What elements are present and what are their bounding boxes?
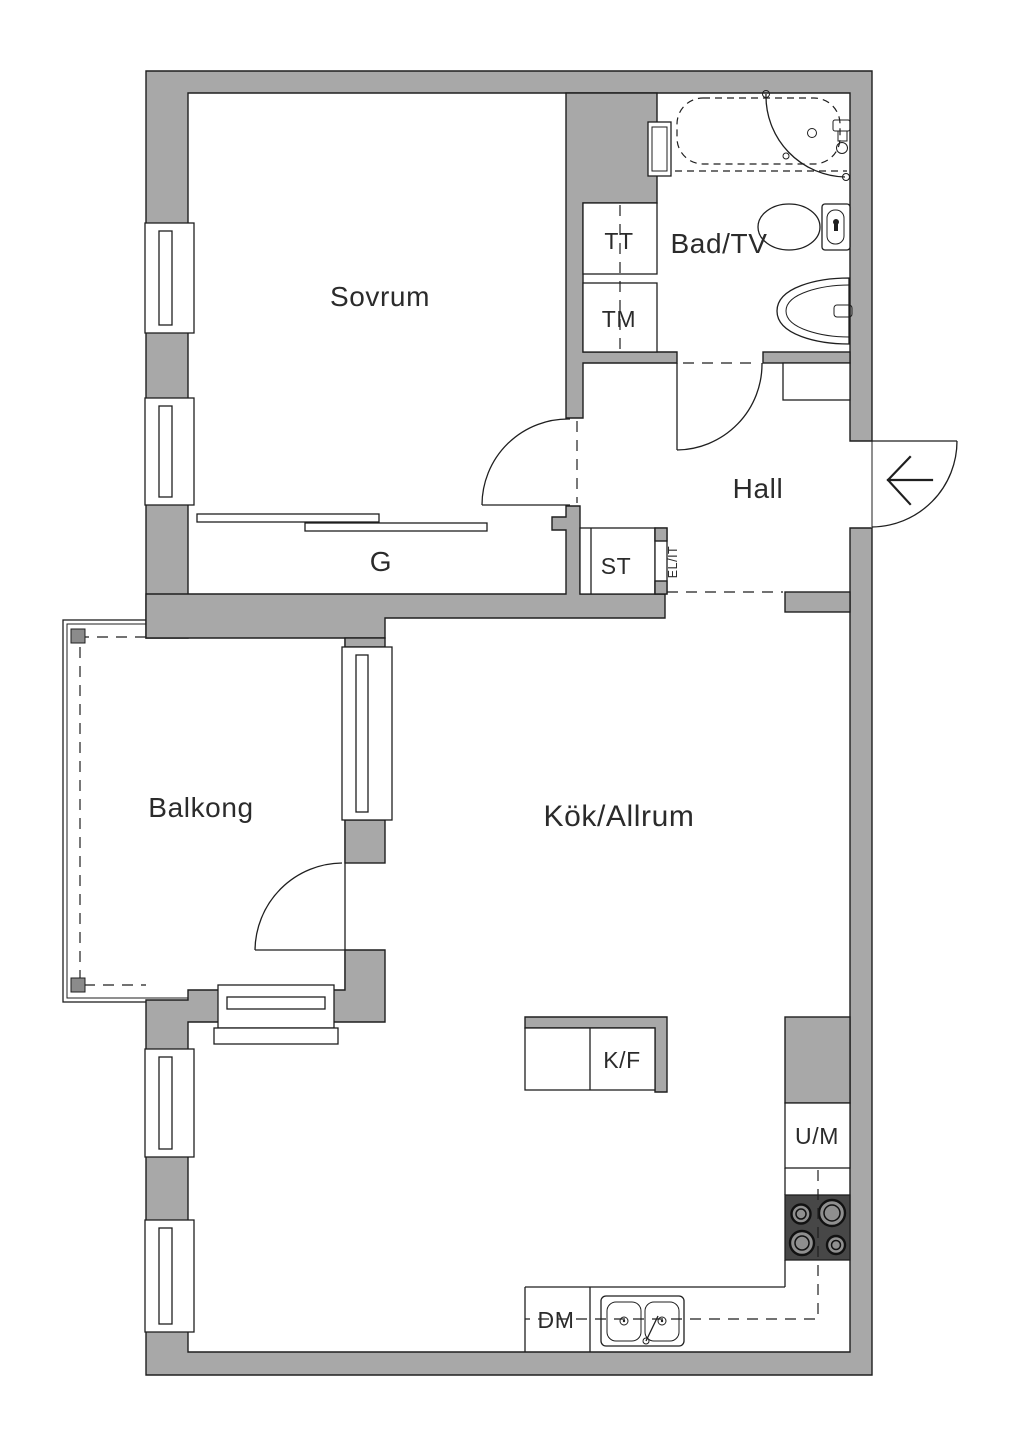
bathtub-mixer xyxy=(837,143,848,154)
room-label-bathroom: Bad/TV xyxy=(671,228,768,259)
electrical-shaft-bottom-block xyxy=(655,581,667,594)
room-label-kitchen-living: Kök/Allrum xyxy=(543,800,694,833)
room-label-balcony: Balkong xyxy=(148,792,253,823)
bedroom-door-arc xyxy=(482,419,570,505)
appliance-label-dryer: TT xyxy=(604,228,633,254)
floorplan-drawing: Sovrum Bad/TV TT TM Hall G ST EL/IT Balk… xyxy=(0,0,1024,1448)
sink-drain-right-dot xyxy=(661,1320,663,1322)
bathtub-faucet xyxy=(833,120,850,131)
wardrobe-sliding-door-1 xyxy=(197,514,379,522)
floorplan-page: Sovrum Bad/TV TT TM Hall G ST EL/IT Balk… xyxy=(0,0,1024,1448)
sink-outline xyxy=(601,1296,684,1346)
toilet xyxy=(758,204,850,250)
burner xyxy=(792,1205,811,1224)
bathtub-faucet-handle xyxy=(838,131,847,141)
wall-hall-kitchen-stub xyxy=(785,592,850,612)
kitchen-sink xyxy=(601,1296,684,1346)
appliance-label-oven: U/M xyxy=(795,1123,839,1149)
burner xyxy=(790,1231,814,1255)
window-kitchen-1-glazing xyxy=(159,1057,172,1149)
wall-balcony-pier xyxy=(345,820,385,863)
room-label-bedroom: Sovrum xyxy=(330,281,430,312)
bathroom-cabinet xyxy=(648,122,671,176)
window-balcony-glazing xyxy=(356,655,368,812)
bathtub-drain xyxy=(808,129,817,138)
washbasin-outline xyxy=(777,278,849,344)
balcony-post xyxy=(71,629,85,643)
wardrobe-sliding-door-2 xyxy=(305,523,487,531)
window-below-balcony-sill xyxy=(214,1028,338,1044)
wall-bathroom-hall xyxy=(763,352,850,363)
room-label-storage: ST xyxy=(601,553,632,579)
appliance-label-washer: TM xyxy=(602,306,636,332)
wall-balcony-top-pier xyxy=(345,638,385,647)
appliance-label-dishwasher: DM xyxy=(538,1307,575,1333)
window-bedroom-1-glazing xyxy=(159,231,172,325)
balcony-post xyxy=(71,978,85,992)
appliance-label-fridge: K/F xyxy=(603,1047,641,1073)
window-below-balcony-glazing xyxy=(227,997,325,1009)
entrance-door-arc xyxy=(872,441,957,527)
room-label-hall: Hall xyxy=(733,473,784,504)
kitchen-tall-cabinet-block xyxy=(785,1017,850,1103)
window-bedroom-2-glazing xyxy=(159,406,172,497)
burner xyxy=(819,1200,845,1226)
sink-drain-left-dot xyxy=(623,1320,625,1322)
entrance-arrow-icon xyxy=(888,457,932,504)
room-label-wardrobe: G xyxy=(370,546,392,577)
electrical-shaft-top-block xyxy=(655,528,667,541)
hall-shelf xyxy=(783,363,850,400)
bathroom-door-arc xyxy=(677,363,762,450)
washbasin xyxy=(777,278,852,344)
toilet-flush-stem xyxy=(834,224,838,231)
bathroom-fixtures xyxy=(648,91,852,345)
burner xyxy=(827,1236,845,1254)
window-kitchen-2-glazing xyxy=(159,1228,172,1324)
label-electrical-shaft: EL/IT xyxy=(666,546,680,578)
curtain-ring xyxy=(783,153,789,159)
